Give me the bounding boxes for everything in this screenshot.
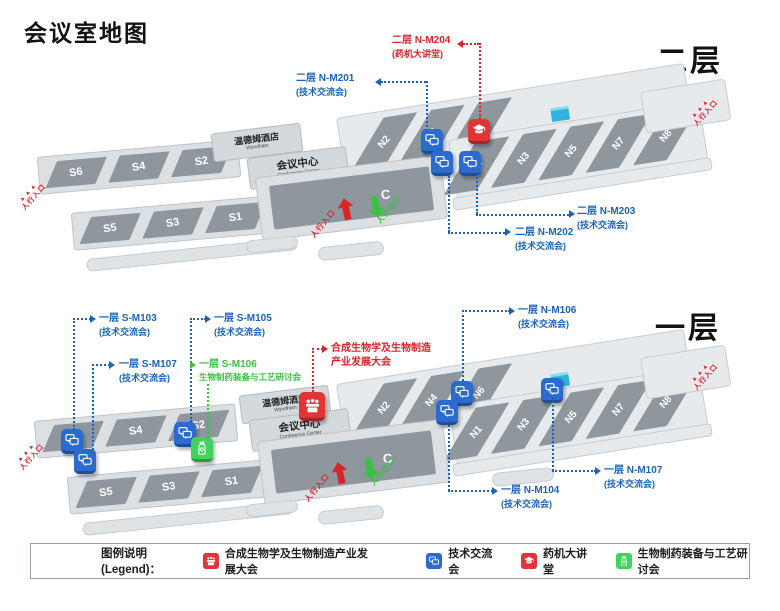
- hall-s3: S3: [138, 471, 199, 502]
- annotation-room: 一层 N-M107: [604, 464, 662, 478]
- annotation-room: 一层 N-M104: [501, 484, 559, 498]
- workshop-badge: [191, 437, 213, 462]
- leader-line: [448, 490, 493, 492]
- legend-bar: 图例说明(Legend)： 合成生物学及生物制造产业发展大会 技术交流会 药机大…: [30, 543, 750, 579]
- annotation-sm106: 一层 S-M106 生物制药装备与工艺研讨会: [199, 358, 301, 383]
- hall-label: N1: [468, 423, 485, 440]
- annotation-sm105: 一层 S-M105 (技术交流会): [214, 312, 272, 338]
- leader-line: [190, 318, 206, 320]
- hall-label: S4: [128, 424, 143, 438]
- annotation-room: 一层 S-M107: [119, 358, 177, 372]
- legend-title: 图例说明(Legend)：: [101, 545, 193, 577]
- chat-icon: [439, 403, 455, 419]
- annotation-room: 一层 S-M105: [214, 312, 272, 326]
- floor1-map: 一层 N2 N4 N6 N1 N3 N5 N7 N8 S6 S4 S2: [0, 0, 780, 611]
- annotation-nm107: 一层 N-M107 (技术交流会): [604, 464, 662, 490]
- leader-line: [73, 318, 75, 430]
- chat-icon: [544, 381, 560, 397]
- annotation-synbio: 合成生物学及生物制造 产业发展大会: [331, 342, 431, 369]
- chat-badge: [74, 449, 96, 474]
- leader-line: [552, 470, 596, 472]
- annotation-room: 一层 N-M106: [518, 304, 576, 318]
- legend-item-label: 合成生物学及生物制造产业发展大会: [225, 545, 374, 577]
- medicine-bottle-icon: [616, 553, 632, 569]
- leader-line: [448, 420, 450, 491]
- annotation-event: (技术交流会): [99, 326, 157, 338]
- hall-label: S1: [224, 475, 239, 489]
- legend-item-lecture: 药机大讲堂: [521, 545, 588, 577]
- pad: [245, 499, 298, 517]
- annotation-nm106: 一层 N-M106 (技术交流会): [518, 304, 576, 330]
- hall-label: N5: [563, 408, 580, 425]
- annotation-room: 一层 S-M103: [99, 312, 157, 326]
- legend-item-label: 生物制药装备与工艺研讨会: [638, 545, 749, 577]
- annotation-event: (技术交流会): [501, 498, 559, 510]
- annotation-sm103: 一层 S-M103 (技术交流会): [99, 312, 157, 338]
- hall-label: S3: [161, 480, 176, 494]
- leader-line: [92, 364, 94, 450]
- hall-c-floor: [271, 430, 436, 493]
- leader-line: [462, 310, 464, 381]
- legend-item-conference: 合成生物学及生物制造产业发展大会: [203, 545, 374, 577]
- conference-room-map: 会议室地图 二层 N2 N4 N6 N1 N3 N5 N7 N8 S6: [0, 0, 780, 611]
- annotation-room: 一层 S-M106: [199, 358, 301, 372]
- leader-line: [462, 310, 510, 312]
- hall-label: S5: [99, 486, 114, 500]
- annotation-event: (技术交流会): [119, 372, 177, 384]
- hall-label: N2: [376, 399, 393, 416]
- legend-item-label: 技术交流会: [448, 545, 493, 577]
- conference-icon: [203, 553, 219, 569]
- podium-people-icon: [303, 396, 322, 415]
- chat-icon: [177, 425, 193, 441]
- chat-icon: [454, 384, 470, 400]
- medicine-bottle-icon: [194, 440, 210, 456]
- arrowhead: [190, 361, 196, 369]
- annotation-nm104: 一层 N-M104 (技术交流会): [501, 484, 559, 510]
- chat-icon: [426, 553, 442, 569]
- annotation-event: (技术交流会): [518, 318, 576, 330]
- leader-line: [552, 398, 554, 471]
- annotation-event: (技术交流会): [604, 478, 662, 490]
- leader-line: [92, 364, 110, 366]
- legend-item-techtalk: 技术交流会: [426, 545, 493, 577]
- legend-item-workshop: 生物制药装备与工艺研讨会: [616, 545, 749, 577]
- annotation-sm107: 一层 S-M107 (技术交流会): [119, 358, 177, 384]
- chat-icon: [64, 432, 80, 448]
- leader-line: [190, 318, 192, 422]
- leader-line: [207, 384, 209, 438]
- annotation-event: 合成生物学及生物制造: [331, 342, 431, 356]
- hall-label: N3: [515, 416, 532, 433]
- chat-icon: [77, 452, 93, 468]
- hall-s5: S5: [76, 477, 137, 508]
- graduation-cap-icon: [521, 553, 537, 569]
- annotation-event: (技术交流会): [214, 326, 272, 338]
- annotation-event: 产业发展大会: [331, 356, 431, 370]
- legend-item-label: 药机大讲堂: [543, 545, 588, 577]
- leader-line: [312, 348, 314, 392]
- hall-s4: S4: [105, 415, 166, 446]
- leader-line: [73, 318, 91, 320]
- hall-s1: S1: [201, 466, 262, 497]
- conference-badge: [299, 392, 325, 421]
- hall-label: N6: [471, 384, 488, 401]
- chat-badge: [436, 400, 458, 425]
- annotation-event: 生物制药装备与工艺研讨会: [199, 372, 301, 383]
- pad: [317, 505, 384, 526]
- hall-label: N7: [610, 401, 627, 418]
